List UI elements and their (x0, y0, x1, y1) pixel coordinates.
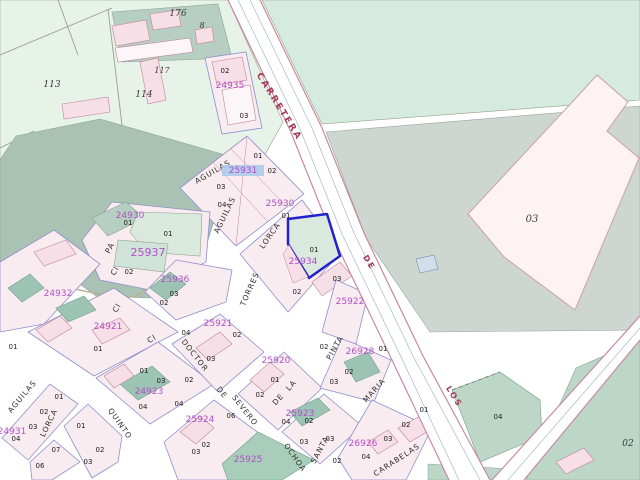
cell-number: 01 (254, 152, 263, 160)
cell-number: 03 (170, 290, 179, 298)
cell-number: 04 (175, 400, 184, 408)
parcel-id-label[interactable]: 24932 (44, 289, 73, 299)
parcel-id-label[interactable]: 25921 (204, 319, 233, 329)
cell-number: 03 (84, 458, 93, 466)
parcel-id-label[interactable]: 24935 (216, 81, 245, 91)
parcel-id-label[interactable]: 26928 (346, 347, 375, 357)
parcel-id-label[interactable]: 25920 (262, 356, 291, 366)
parcel-id-label[interactable]: 25922 (336, 297, 365, 307)
cell-number: 03 (333, 275, 342, 283)
cell-number: 03 (326, 435, 335, 443)
cell-number: 06 (36, 462, 45, 470)
cell-number: 04 (218, 201, 227, 209)
cell-number: 01 (94, 345, 103, 353)
cell-number: 02 (202, 441, 211, 449)
parcel-id-label[interactable]: 25937 (131, 246, 166, 259)
parcel-id-label[interactable]: 24931 (0, 427, 26, 437)
parcel-id-label[interactable]: 25934 (289, 257, 318, 267)
cell-number: 03 (157, 377, 166, 385)
area-number: 02 (622, 439, 634, 449)
cell-number: 02 (125, 268, 134, 276)
parcel-id-label[interactable]: 25931 (229, 166, 258, 176)
cell-number: 02 (40, 408, 49, 416)
parcel-id-label[interactable]: 25923 (286, 409, 315, 419)
cell-number: 02 (345, 368, 354, 376)
cell-number: 03 (207, 355, 216, 363)
cell-number: 01 (55, 393, 64, 401)
parcel-id-label[interactable]: 25924 (186, 415, 215, 425)
cell-number: 01 (77, 422, 86, 430)
cell-number: 03 (192, 448, 201, 456)
cell-number: 02 (160, 299, 169, 307)
area-number: 03 (526, 214, 539, 225)
cell-number: 03 (300, 438, 309, 446)
cell-number: 01 (164, 230, 173, 238)
cell-number: 03 (384, 435, 393, 443)
cadastral-map[interactable]: AGUILASAGUILASLORCATORRESDOCTORDESEVEROO… (0, 0, 640, 480)
area-number: 114 (135, 90, 152, 100)
cell-number: 04 (362, 453, 371, 461)
cell-number: 02 (402, 421, 411, 429)
cell-number: 02 (96, 446, 105, 454)
cell-number: 01 (420, 406, 429, 414)
parcel-id-label[interactable]: 24930 (116, 211, 145, 221)
parcel-id-label[interactable]: 24921 (94, 322, 123, 332)
cell-number: 04 (494, 413, 503, 421)
cell-number: 01 (140, 367, 149, 375)
cell-number: 01 (9, 343, 18, 351)
cell-number: 02 (221, 67, 230, 75)
parcel-id-label[interactable]: 26926 (349, 439, 378, 449)
cell-number: 02 (185, 376, 194, 384)
cell-number: 01 (310, 246, 319, 254)
area-number: 117 (154, 66, 170, 75)
cell-number: 07 (52, 446, 61, 454)
cell-number: 02 (256, 391, 265, 399)
cell-number: 01 (379, 345, 388, 353)
cell-number: 02 (233, 331, 242, 339)
cell-number: 04 (282, 418, 291, 426)
cell-number: 01 (282, 212, 291, 220)
area-number: 176 (169, 9, 186, 19)
cell-number: 02 (333, 457, 342, 465)
parcel-id-label[interactable]: 24923 (135, 387, 164, 397)
cell-number: 02 (293, 288, 302, 296)
cell-number: 01 (271, 376, 280, 384)
cell-number: 03 (29, 423, 38, 431)
parcel-id-label[interactable]: 25925 (234, 455, 263, 465)
parcel-id-label[interactable]: 25930 (266, 199, 295, 209)
cell-number: 02 (320, 343, 329, 351)
cell-number: 04 (182, 329, 191, 337)
area-number: 113 (43, 80, 60, 90)
cell-number: 03 (330, 378, 339, 386)
cell-number: 03 (217, 183, 226, 191)
cell-number: 03 (240, 112, 249, 120)
cell-number: 04 (139, 403, 148, 411)
parcel-id-label[interactable]: 25936 (161, 275, 190, 285)
cell-number: 06 (227, 412, 236, 420)
cell-number: 02 (268, 167, 277, 175)
area-number: 8 (199, 21, 204, 30)
